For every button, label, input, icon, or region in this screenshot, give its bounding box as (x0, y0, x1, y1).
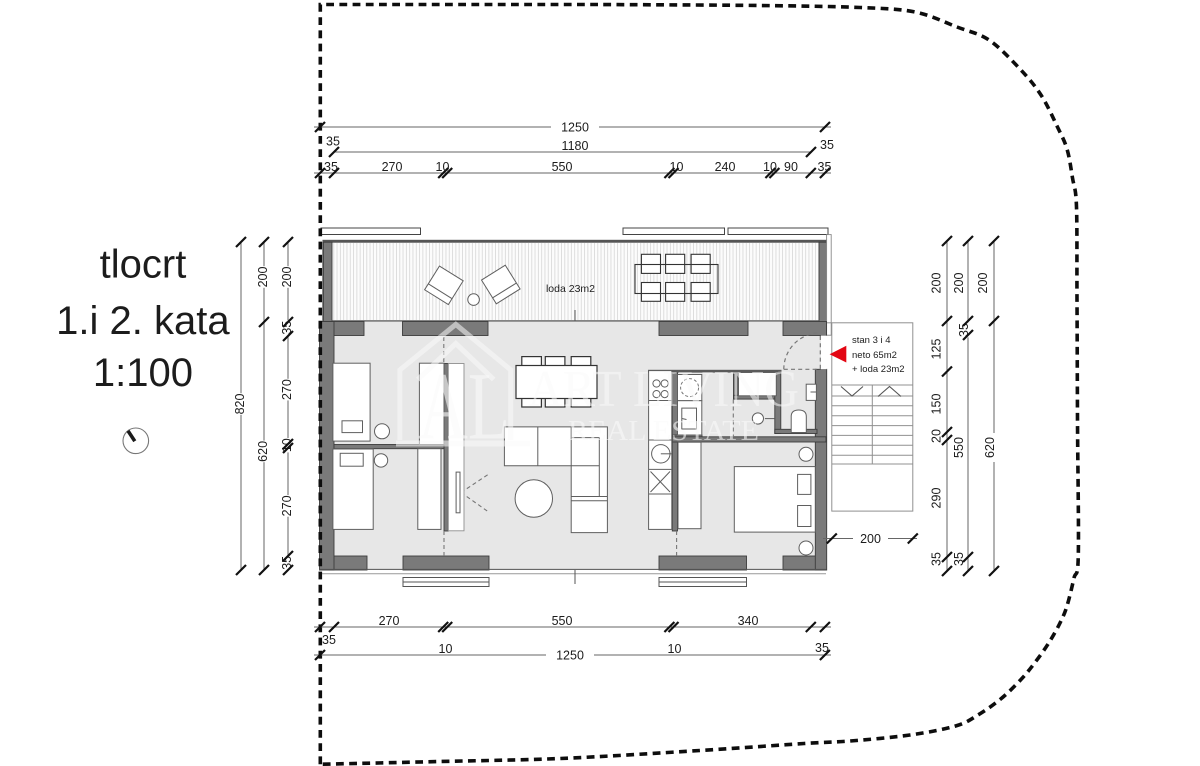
svg-text:620: 620 (983, 437, 997, 458)
svg-text:200: 200 (930, 273, 944, 294)
svg-text:tlocrt: tlocrt (100, 243, 187, 287)
svg-text:270: 270 (382, 160, 403, 174)
svg-text:35: 35 (818, 160, 832, 174)
svg-text:200: 200 (860, 532, 881, 546)
svg-text:270: 270 (280, 495, 294, 516)
svg-text:1180: 1180 (562, 139, 589, 153)
svg-text:35: 35 (324, 160, 338, 174)
svg-text:550: 550 (552, 160, 573, 174)
svg-text:35: 35 (820, 138, 834, 152)
svg-text:550: 550 (552, 614, 573, 628)
svg-text:10: 10 (763, 160, 777, 174)
svg-text:620: 620 (256, 441, 270, 462)
svg-text:200: 200 (976, 273, 990, 294)
svg-text:neto 65m2: neto 65m2 (852, 350, 897, 361)
svg-text:10: 10 (670, 160, 684, 174)
svg-text:REAL ESTATE: REAL ESTATE (568, 416, 759, 447)
svg-text:stan 3 i 4: stan 3 i 4 (852, 335, 891, 346)
svg-text:270: 270 (280, 379, 294, 400)
svg-text:200: 200 (952, 273, 966, 294)
svg-text:1:100: 1:100 (93, 351, 193, 395)
svg-text:10: 10 (436, 160, 450, 174)
svg-text:10: 10 (439, 642, 453, 656)
svg-text:90: 90 (784, 160, 798, 174)
svg-text:200: 200 (256, 267, 270, 288)
svg-text:1250: 1250 (556, 649, 584, 663)
svg-text:AL: AL (418, 353, 510, 460)
svg-text:270: 270 (379, 614, 400, 628)
svg-text:20: 20 (930, 429, 944, 443)
svg-text:1250: 1250 (561, 121, 589, 135)
svg-text:35: 35 (322, 633, 336, 647)
svg-text:1.i 2. kata: 1.i 2. kata (56, 299, 230, 343)
svg-text:200: 200 (280, 267, 294, 288)
svg-text:550: 550 (952, 437, 966, 458)
svg-text:35: 35 (326, 135, 340, 149)
svg-text:35: 35 (930, 552, 944, 566)
svg-text:loda 23m2: loda 23m2 (546, 283, 595, 295)
svg-text:820: 820 (233, 394, 247, 415)
svg-text:+ loda 23m2: + loda 23m2 (852, 364, 905, 375)
svg-text:240: 240 (715, 160, 736, 174)
svg-text:290: 290 (930, 488, 944, 509)
svg-text:340: 340 (738, 614, 759, 628)
svg-text:35: 35 (952, 552, 966, 566)
svg-text:125: 125 (930, 339, 944, 360)
svg-text:150: 150 (930, 394, 944, 415)
svg-text:ART LIVING: ART LIVING (528, 361, 799, 418)
svg-text:10: 10 (668, 642, 682, 656)
